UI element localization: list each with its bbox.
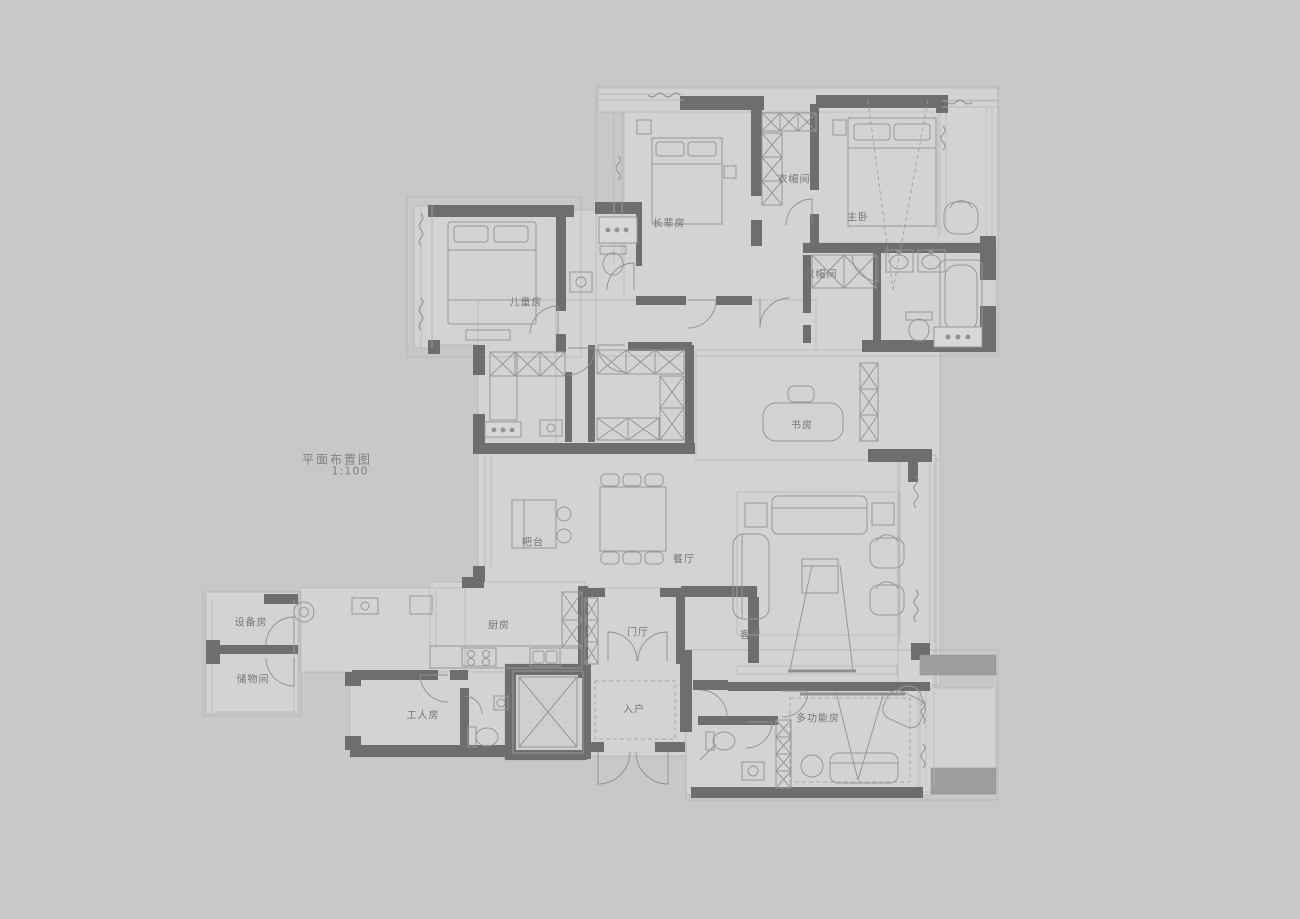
- room-label-master-bedroom: 主卧: [847, 209, 869, 224]
- room-label-foyer: 门厅: [627, 624, 649, 639]
- floor-plan-canvas: 平面布置图 1:100 儿童房 长辈房 衣帽间 主卧 衣帽间 书房 吧台 餐厅 …: [0, 0, 1300, 919]
- room-label-children-room: 儿童房: [510, 294, 543, 309]
- room-label-entry: 入户: [623, 701, 645, 716]
- room-label-equipment-room: 设备房: [235, 614, 268, 629]
- room-label-living-room: 客厅: [740, 627, 762, 642]
- room-label-multi-function: 多功能房: [796, 710, 840, 725]
- room-label-storage-room: 储物间: [237, 671, 270, 686]
- room-label-worker-room: 工人房: [407, 707, 440, 722]
- room-label-bar: 吧台: [522, 534, 544, 549]
- room-label-kitchen: 厨房: [488, 617, 510, 632]
- room-label-cloakroom-master: 衣帽间: [805, 266, 838, 281]
- plan-scale: 1:100: [332, 465, 369, 478]
- room-label-cloakroom-top: 衣帽间: [778, 171, 811, 186]
- floor-plan-drawing: [0, 0, 1300, 919]
- room-label-elder-room: 长辈房: [653, 215, 686, 230]
- room-label-study: 书房: [791, 417, 813, 432]
- room-label-dining-room: 餐厅: [673, 551, 695, 566]
